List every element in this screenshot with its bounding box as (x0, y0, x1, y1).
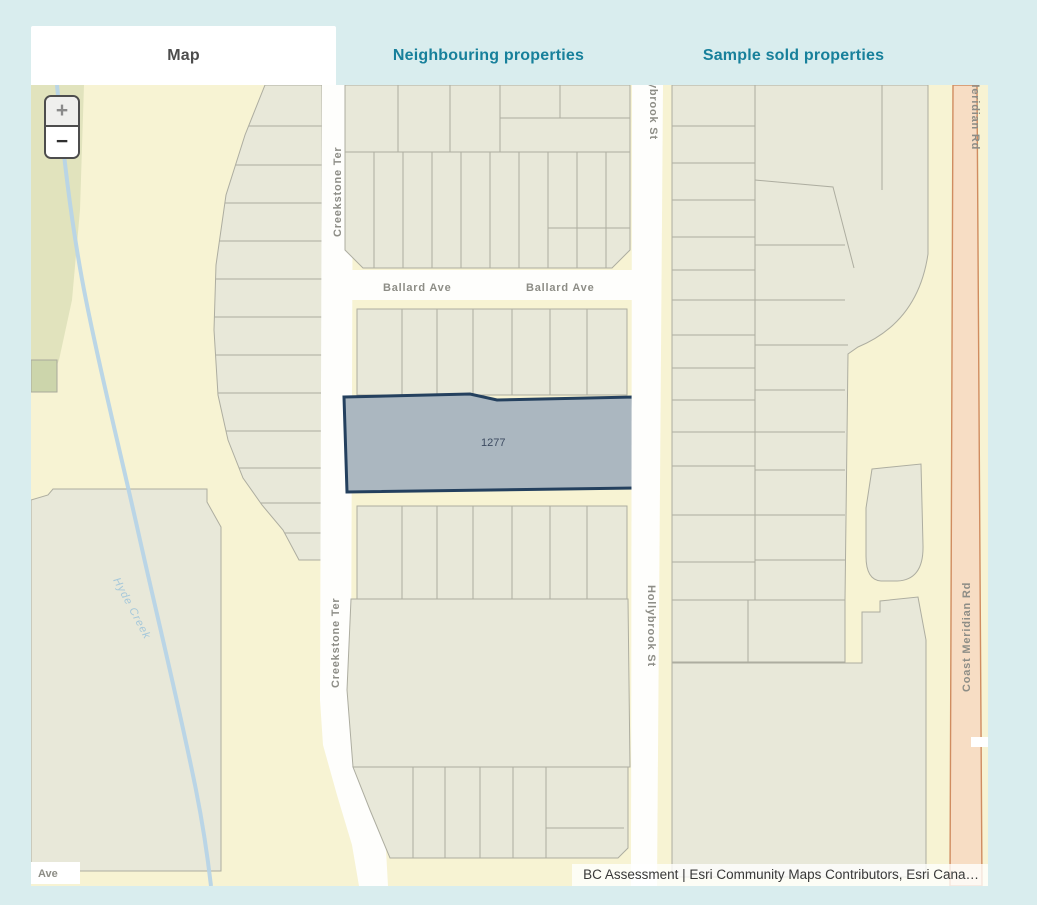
tab-bar: Map Neighbouring properties Sample sold … (31, 26, 988, 85)
map-canvas[interactable]: 1277 Ave Creekstone Ter Creekstone Ter H… (31, 85, 988, 886)
street-label-coast-meridian-north: Coast Meridian Rd (969, 85, 981, 150)
road-coast-meridian (950, 85, 982, 886)
street-label-ballard-east: Ballard Ave (526, 282, 595, 294)
tab-sample-sold-properties[interactable]: Sample sold properties (641, 26, 946, 85)
street-label-hollybrook-south: Hollybrook St (645, 585, 657, 667)
street-label-creekstone-south: Creekstone Ter (330, 598, 342, 688)
tab-map[interactable]: Map (31, 26, 336, 85)
zoom-control: + − (44, 95, 80, 159)
parcel-large-central[interactable] (347, 599, 630, 767)
street-label-creekstone-north: Creekstone Ter (332, 147, 344, 237)
greenbelt-parcel[interactable] (31, 489, 221, 871)
tab-neighbouring-properties[interactable]: Neighbouring properties (336, 26, 641, 85)
street-label-hollybrook-north: Hollybrook St (647, 85, 659, 140)
parcel-row-east-mid[interactable] (672, 600, 845, 662)
greenspace-parcel[interactable] (31, 360, 57, 392)
street-label-ave: Ave (38, 868, 58, 880)
zoom-out-button[interactable]: − (46, 127, 78, 157)
street-label-coast-meridian-south: Coast Meridian Rd (961, 582, 973, 692)
parcel-column-east[interactable] (672, 85, 755, 600)
selected-parcel-number: 1277 (481, 437, 505, 449)
zoom-in-button[interactable]: + (46, 97, 78, 127)
road-gap-marking (971, 737, 988, 747)
street-label-ballard-west: Ballard Ave (383, 282, 452, 294)
parcel-rounded-east[interactable] (866, 464, 923, 581)
map-attribution: BC Assessment | Esri Community Maps Cont… (572, 864, 988, 886)
parcel-block-north-central[interactable] (345, 85, 630, 268)
parcel-row-south-central[interactable] (353, 767, 628, 858)
